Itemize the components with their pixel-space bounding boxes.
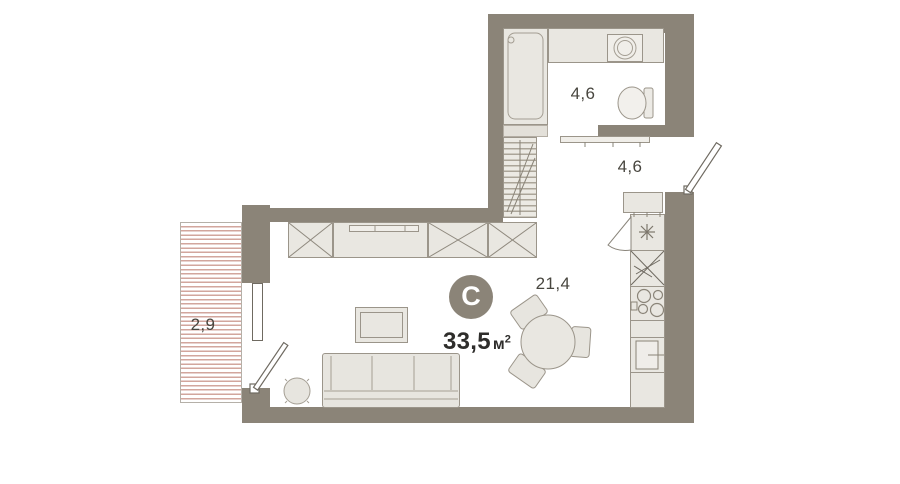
- bathtub: [503, 28, 548, 125]
- hallway-wardrobe: [503, 137, 537, 218]
- wall-bathroom-left: [488, 14, 503, 222]
- wall-livingroom-top: [270, 208, 503, 222]
- total-area-unit: м: [493, 336, 505, 353]
- balcony-area: [180, 222, 242, 403]
- bathroom-sliding-door: [560, 136, 650, 143]
- oven: [630, 337, 665, 373]
- entry-door-leaf: [685, 143, 721, 193]
- toilet-icon: [618, 87, 653, 119]
- living-area-label: 21,4: [531, 274, 575, 294]
- sofa: [322, 353, 460, 408]
- fridge: [630, 214, 665, 251]
- dining-chair-right: [570, 326, 591, 357]
- closet-x-left: [288, 222, 333, 258]
- hallway-area-label: 4,6: [608, 157, 652, 177]
- unit-type-letter: С: [461, 281, 481, 312]
- kitchen-sink-unit: [630, 250, 665, 287]
- dining-chair-bottom: [508, 353, 547, 389]
- wall-left-lower: [242, 388, 270, 423]
- bathroom-counter: [548, 28, 664, 63]
- stove: [630, 286, 665, 321]
- balcony-area-label: 2,9: [185, 315, 221, 335]
- wall-bathroom-right: [665, 14, 694, 137]
- kitchen-upper-cabinet: [623, 192, 663, 213]
- balcony-window: [252, 283, 263, 341]
- dining-chair-top: [510, 294, 549, 330]
- pouf-icon: [284, 378, 310, 404]
- bathroom-area-label: 4,6: [561, 84, 605, 104]
- kitchen-counter-mid: [630, 320, 665, 338]
- fridge-door-swing: [608, 217, 631, 250]
- total-area-value: 33,5: [443, 328, 491, 355]
- wall-left-upper: [242, 205, 270, 283]
- coffee-table-top: [360, 312, 403, 338]
- wall-bottom: [242, 407, 694, 423]
- dining-table: [521, 315, 575, 369]
- bathtub-end-partition: [503, 125, 548, 137]
- total-area-label: 33,5м2: [443, 328, 511, 356]
- dining-set: [508, 294, 591, 389]
- entry-door: [684, 143, 721, 194]
- kitchen-counter-low: [630, 372, 665, 408]
- closet-x-right: [488, 222, 537, 258]
- tv-screen: [349, 225, 419, 232]
- washing-machine: [607, 34, 643, 62]
- floor-plan: 2,9 4,6 4,6 21,4 С 33,5м2: [0, 0, 900, 484]
- total-area-sup: 2: [505, 334, 511, 346]
- unit-type-badge: С: [449, 275, 493, 319]
- balcony-door-leaf: [254, 343, 288, 391]
- closet-x-middle: [428, 222, 488, 258]
- wall-right: [665, 192, 694, 423]
- balcony-door: [250, 343, 288, 393]
